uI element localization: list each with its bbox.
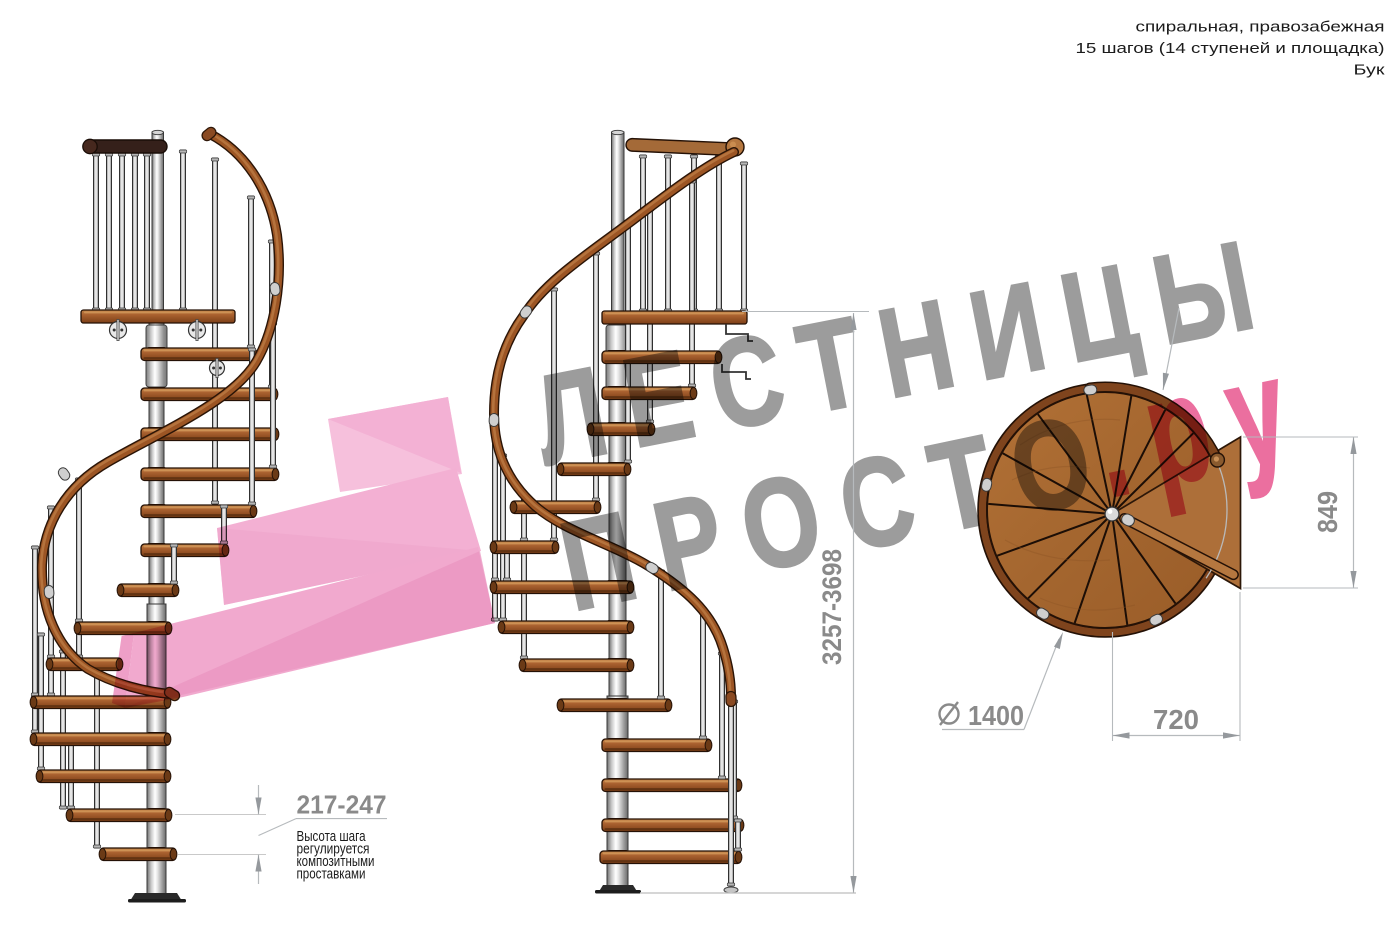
- svg-text:Бук: Бук: [1354, 62, 1386, 79]
- svg-text:15 шагов (14 ступеней и площад: 15 шагов (14 ступеней и площадка): [1076, 40, 1385, 57]
- svg-text:проставками: проставками: [297, 866, 366, 883]
- svg-text:1400: 1400: [968, 700, 1024, 731]
- svg-text:217-247: 217-247: [297, 790, 387, 820]
- svg-text:849: 849: [1312, 491, 1343, 533]
- svg-text:720: 720: [1153, 704, 1199, 735]
- svg-text:спиральная, правозабежная: спиральная, правозабежная: [1136, 19, 1385, 36]
- svg-text:3257-3698: 3257-3698: [817, 549, 847, 665]
